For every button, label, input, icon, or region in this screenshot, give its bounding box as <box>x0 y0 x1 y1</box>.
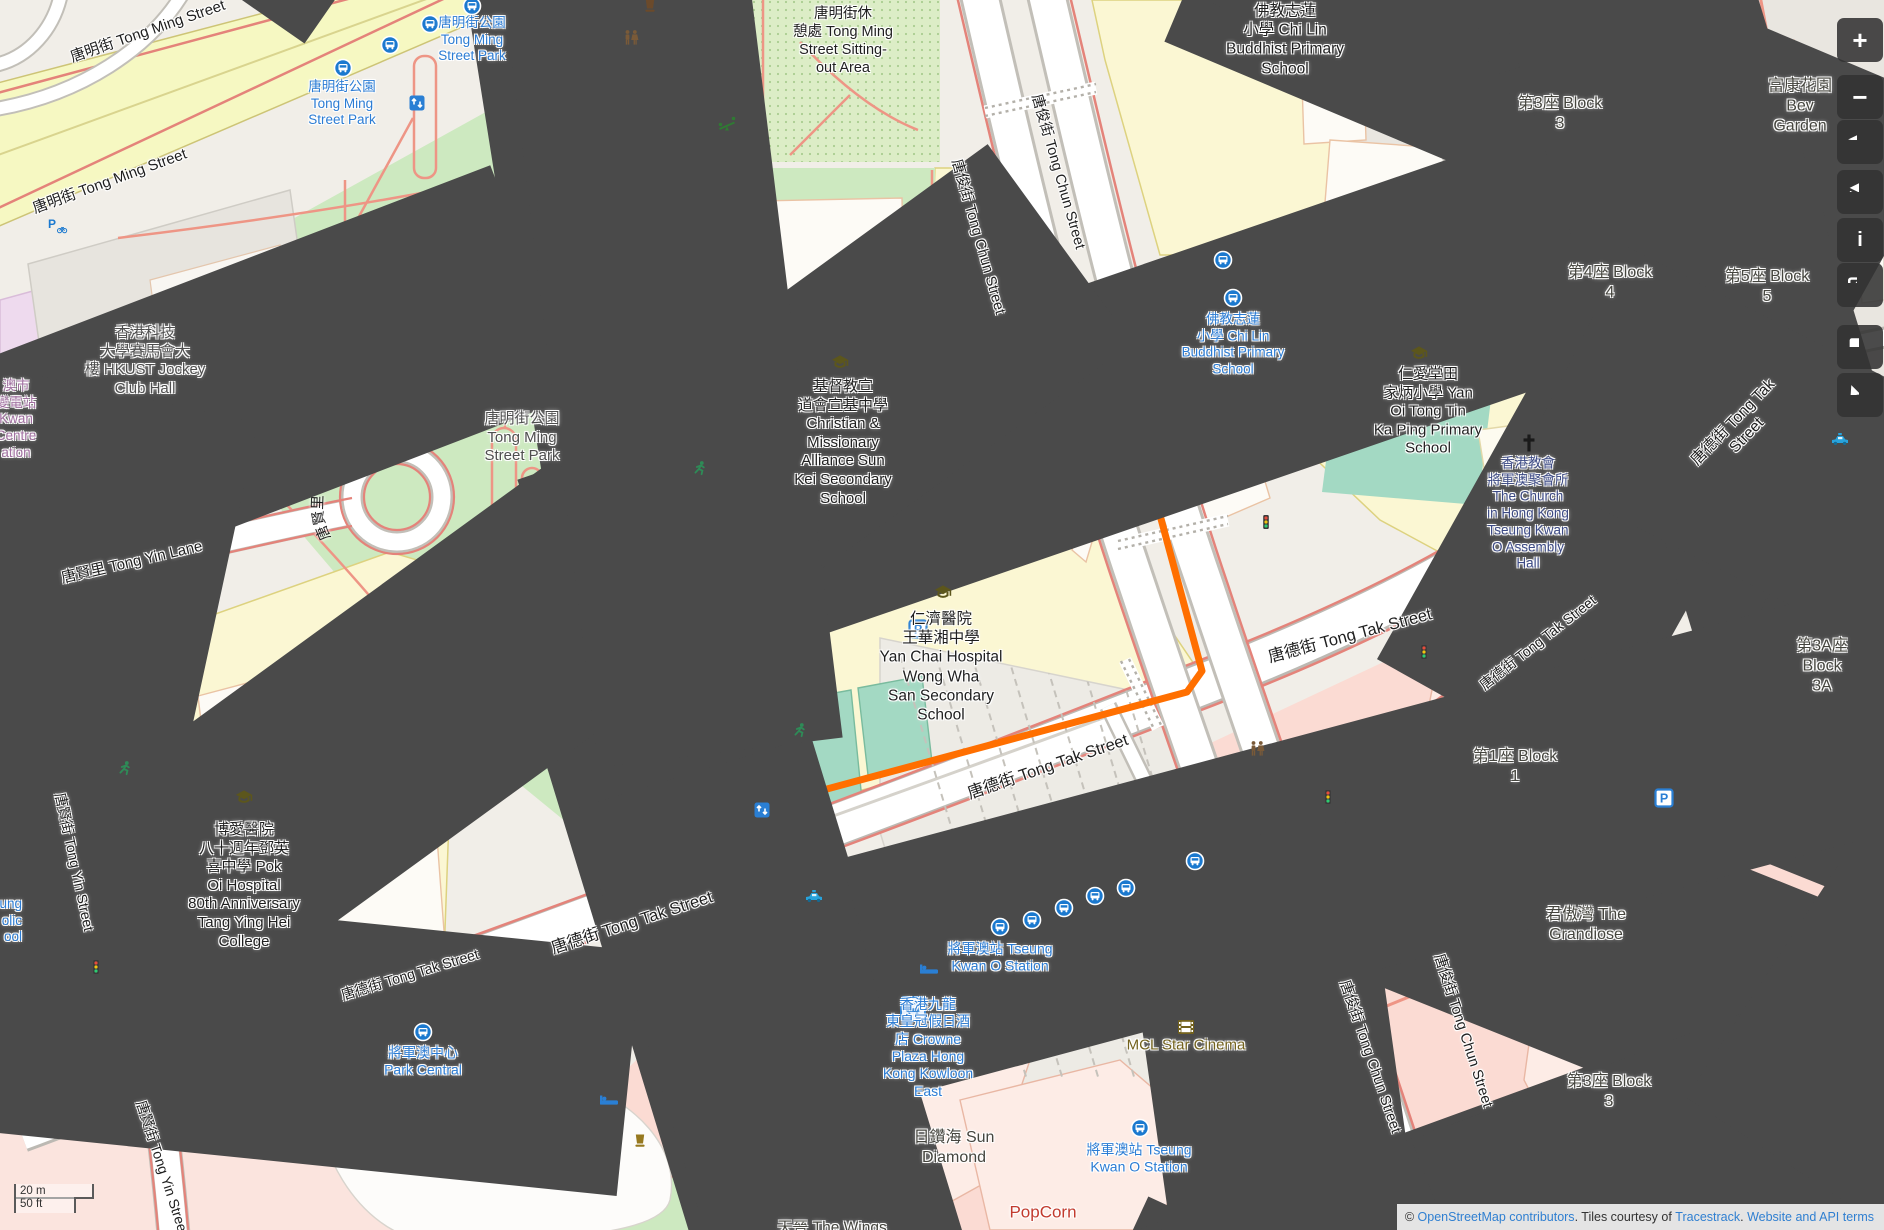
bus-stop-icon <box>464 0 481 15</box>
bus-stop-icon <box>335 60 352 77</box>
scale-bar: 20 m 50 ft <box>14 1184 94 1213</box>
bus-stop-icon <box>1024 912 1041 929</box>
parking-icon <box>910 621 927 638</box>
cinema-icon <box>1178 1020 1194 1034</box>
bus-stop-icon <box>1187 853 1204 870</box>
share-button[interactable] <box>1837 263 1883 307</box>
tracestrack-link[interactable]: Tracestrack <box>1675 1210 1740 1224</box>
layers-icon <box>1837 170 1859 192</box>
bus-stop-icon <box>1087 888 1104 905</box>
bus-station-icon <box>901 997 925 1021</box>
traffic-light-icon <box>1421 645 1427 659</box>
attribution-prefix: © <box>1405 1210 1418 1224</box>
attribution-tiles-text: . Tiles courtesy of <box>1575 1210 1676 1224</box>
traffic-light-icon <box>1263 515 1269 529</box>
elevator-icon <box>755 803 770 818</box>
traffic-light-icon <box>1325 790 1331 804</box>
query-features-button[interactable] <box>1837 373 1883 417</box>
bus-stop-icon <box>1215 252 1232 269</box>
locate-icon <box>1837 120 1857 140</box>
bus-stop-icon <box>1118 880 1135 897</box>
zoom-out-button[interactable]: − <box>1837 75 1883 119</box>
elevator-icon <box>410 96 425 111</box>
bus-stop-icon <box>422 16 439 33</box>
bus-stop-icon <box>1225 290 1242 307</box>
zoom-in-button[interactable]: + <box>1837 18 1883 62</box>
add-note-icon <box>1837 325 1859 347</box>
scale-imperial: 50 ft <box>14 1197 76 1213</box>
bus-stop-icon <box>382 37 399 54</box>
attribution-separator: . <box>1740 1210 1747 1224</box>
bus-stop-icon <box>1132 1120 1149 1137</box>
traffic-light-icon <box>93 960 99 974</box>
bus-stop-icon <box>992 919 1009 936</box>
cafe-icon <box>635 1135 644 1147</box>
layers-button[interactable] <box>1837 170 1883 214</box>
osm-contributors-link[interactable]: OpenStreetMap contributors <box>1418 1210 1575 1224</box>
locate-button[interactable] <box>1837 120 1883 164</box>
query-features-icon <box>1837 373 1859 395</box>
bicycle-parking-icon <box>48 217 67 233</box>
terms-link[interactable]: Website and API terms <box>1747 1210 1874 1224</box>
bus-stop-icon <box>1056 900 1073 917</box>
cafe-icon <box>645 0 654 12</box>
map-canvas[interactable]: P P <box>0 0 1884 1230</box>
map-graphics: P P <box>0 0 1884 1230</box>
bus-stop-icon <box>415 1024 432 1041</box>
add-note-button[interactable] <box>1837 325 1883 369</box>
share-icon <box>1837 263 1857 283</box>
map-info-button[interactable]: i <box>1837 218 1883 262</box>
attribution-bar: © OpenStreetMap contributors. Tiles cour… <box>1397 1204 1884 1230</box>
parking-icon <box>1656 790 1673 807</box>
